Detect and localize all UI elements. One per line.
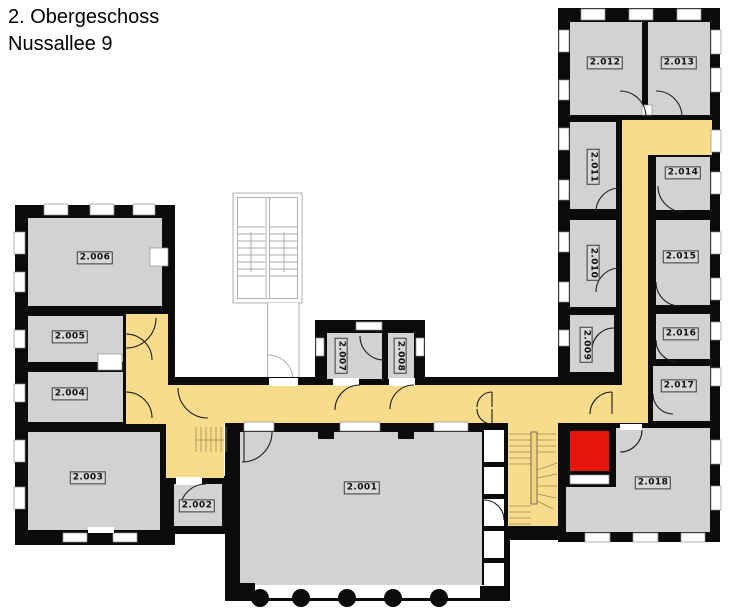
corridor-south-pocket [166,423,224,478]
room-label-2002: 2.002 [179,499,215,512]
room-2001-area [240,432,482,585]
exterior-stairwell-outline [233,193,302,380]
corridor-right-wing [622,120,648,423]
room-label-2018: 2.018 [635,476,671,489]
room-label-2014: 2.014 [665,166,701,179]
room-areas [28,22,710,585]
room-label-2004: 2.004 [52,387,88,400]
corridor-right-top [622,120,712,155]
highlighted-room-area [570,431,609,471]
room-label-2013: 2.013 [661,56,697,69]
floor-plan-drawing [0,0,738,608]
room-label-2008: 2.008 [393,338,406,374]
floor-plan-page: 2. Obergeschoss Nussallee 9 [0,0,738,608]
room-label-2017: 2.017 [661,379,697,392]
room-label-2015: 2.015 [663,250,699,263]
utility-cells [484,430,504,590]
room-2017-area [653,366,710,421]
room-label-2006: 2.006 [77,251,113,264]
room-label-2016: 2.016 [663,327,699,340]
room-label-2009: 2.009 [579,327,592,363]
room-label-2011: 2.011 [586,149,599,185]
room-label-2007: 2.007 [334,338,347,374]
stair-railing [531,432,537,504]
room-label-2010: 2.010 [586,245,599,281]
hall-colonnade [225,583,510,607]
room-label-2012: 2.012 [587,56,623,69]
room-label-2001: 2.001 [344,481,380,494]
room-label-2003: 2.003 [70,471,106,484]
room-label-2005: 2.005 [52,330,88,343]
